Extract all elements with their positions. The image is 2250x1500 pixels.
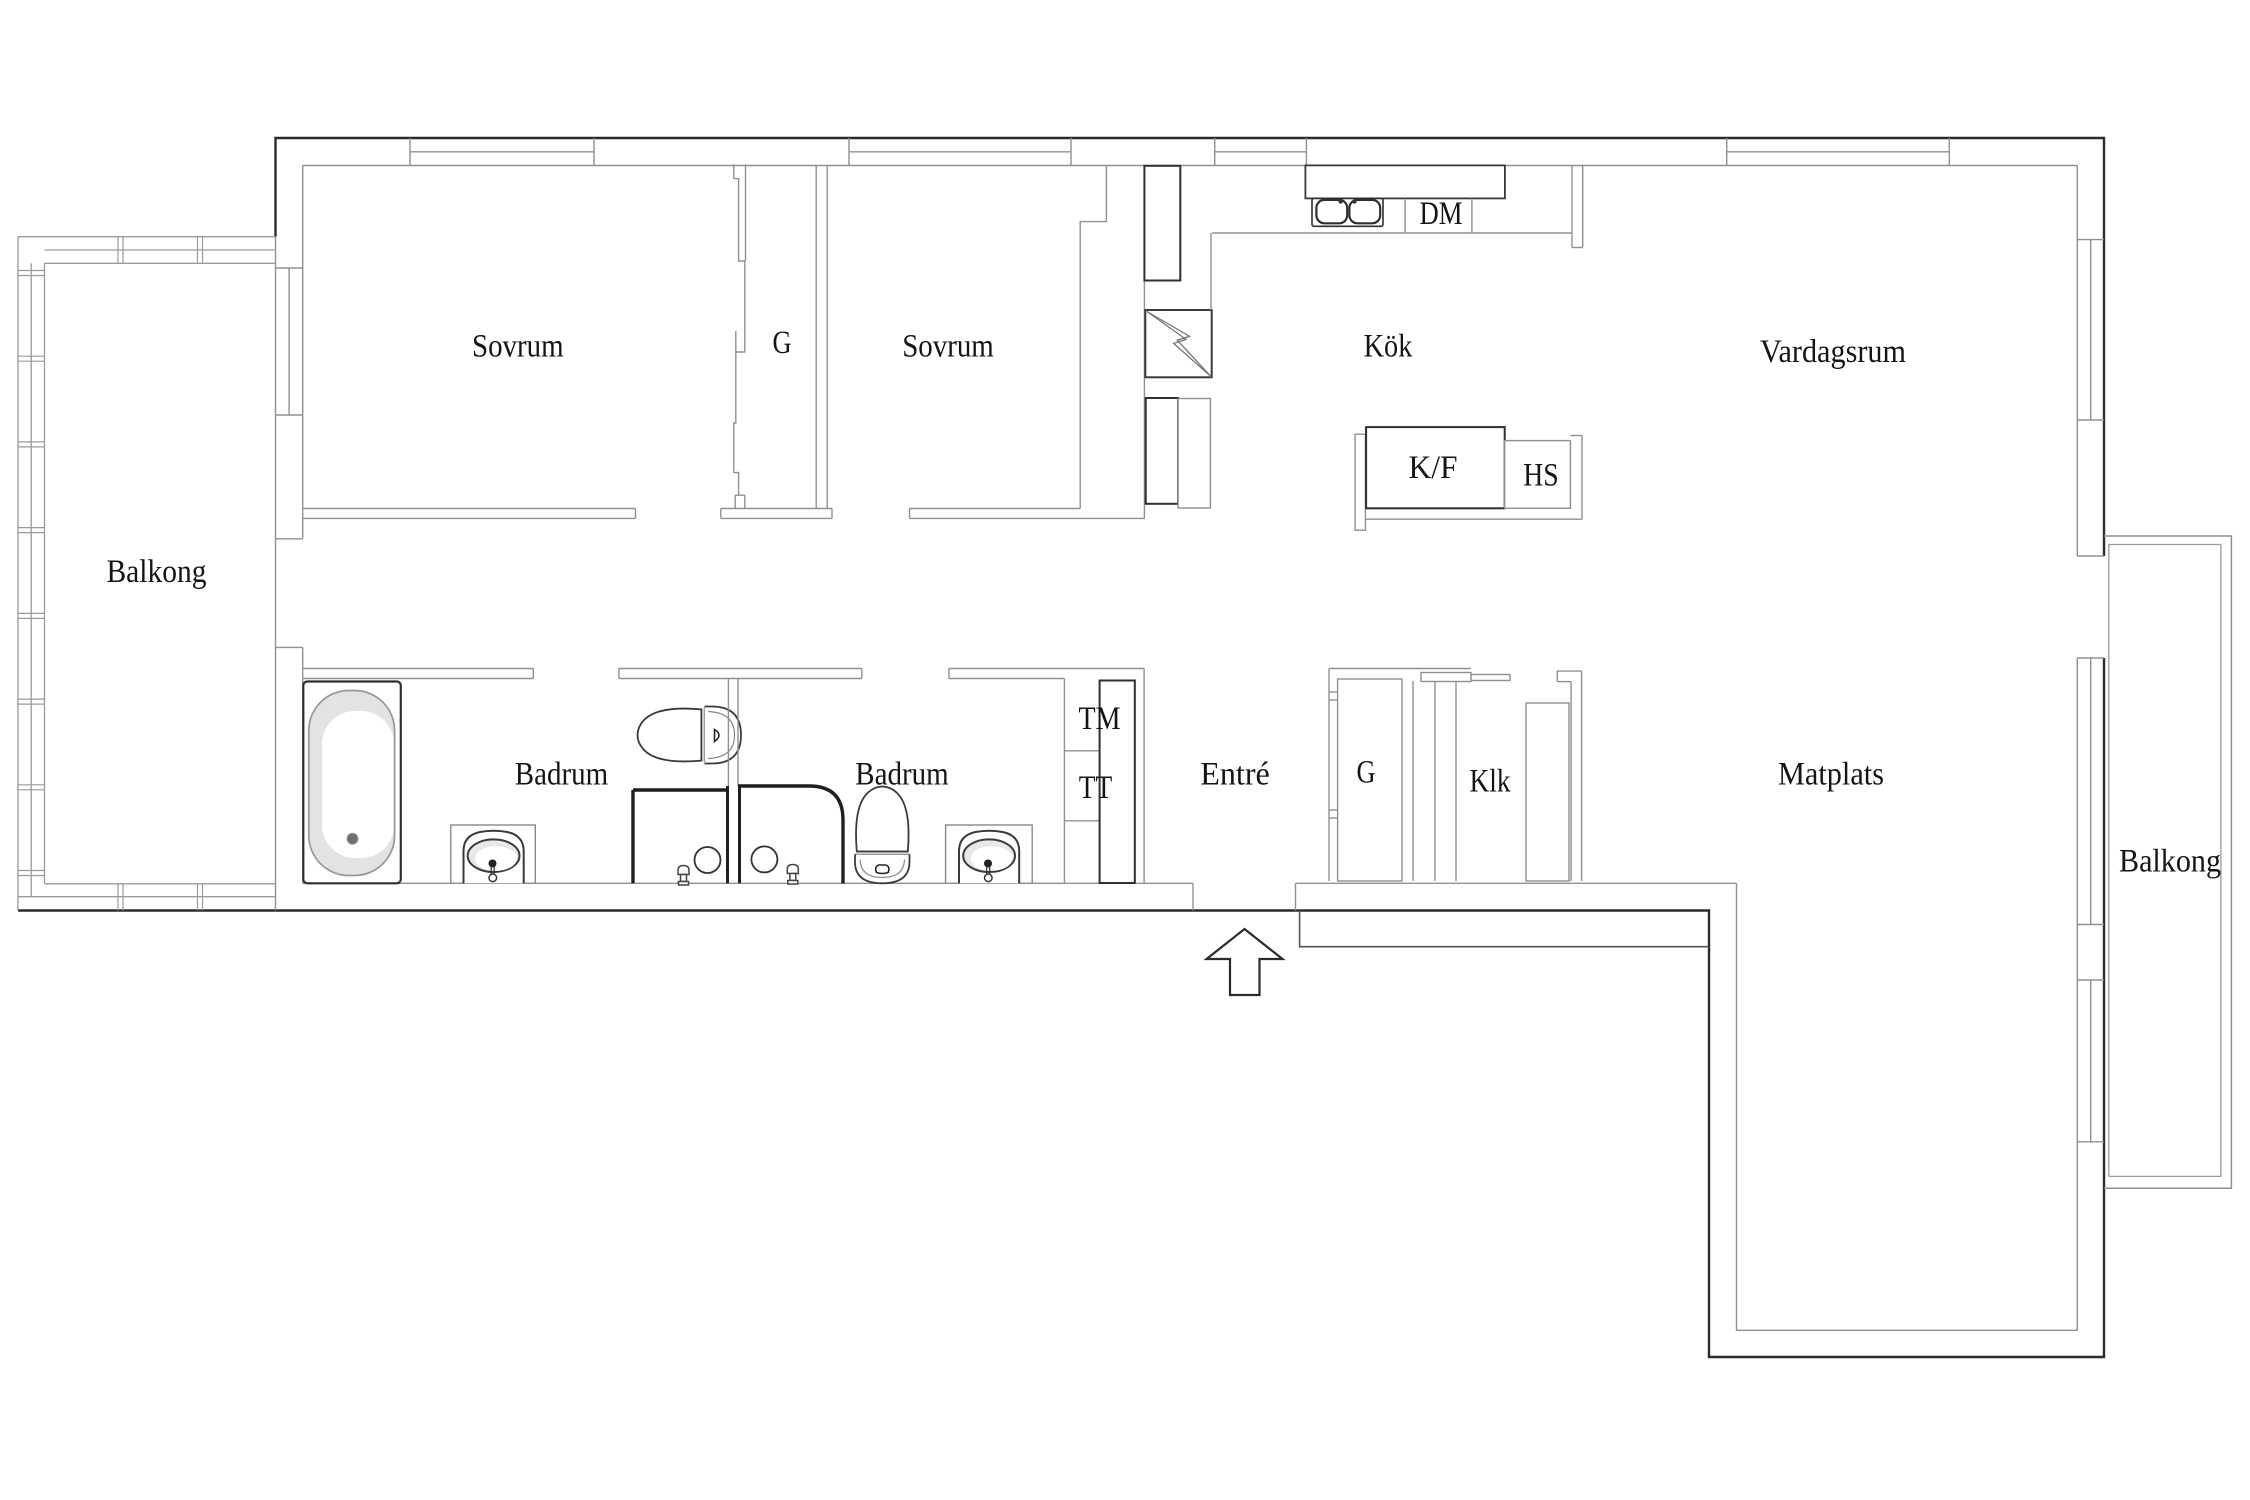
svg-text:Klk: Klk: [1470, 764, 1511, 800]
svg-text:Matplats: Matplats: [1778, 757, 1884, 793]
svg-text:DM: DM: [1420, 196, 1463, 232]
svg-text:HS: HS: [1523, 458, 1559, 494]
svg-text:TM: TM: [1079, 701, 1121, 737]
svg-text:Badrum: Badrum: [515, 756, 609, 792]
svg-text:Balkong: Balkong: [107, 554, 207, 590]
svg-text:K/F: K/F: [1409, 450, 1458, 486]
svg-text:Sovrum: Sovrum: [472, 328, 564, 364]
svg-text:Entré: Entré: [1200, 756, 1270, 792]
svg-text:G: G: [1357, 754, 1376, 790]
svg-text:Balkong: Balkong: [2119, 844, 2221, 880]
svg-text:Vardagsrum: Vardagsrum: [1760, 334, 1906, 370]
svg-text:Sovrum: Sovrum: [902, 328, 994, 364]
svg-text:Kök: Kök: [1364, 329, 1413, 365]
svg-text:TT: TT: [1079, 770, 1113, 806]
svg-text:Badrum: Badrum: [855, 756, 949, 792]
svg-text:G: G: [773, 325, 792, 361]
